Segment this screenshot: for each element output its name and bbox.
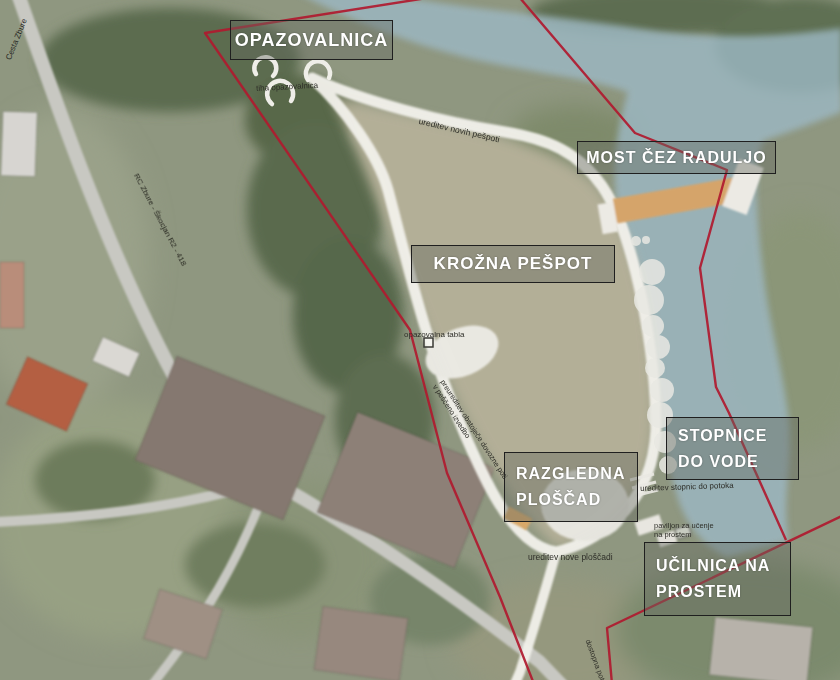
info-board-symbol	[424, 338, 433, 347]
label-stopnice-do-vode: STOPNICE DO VODE	[666, 417, 799, 480]
label-opazovalnica: OPAZOVALNICA	[230, 20, 393, 60]
label-razgledna-ploscad: RAZGLEDNA PLOŠČAD	[504, 452, 638, 522]
annotation-opazovalna-tabla: opazovalna tabla	[404, 330, 465, 339]
aerial-site-plan-map: OPAZOVALNICA MOST ČEZ RADULJO KROŽNA PEŠ…	[0, 0, 840, 680]
label-opazovalnica-text: OPAZOVALNICA	[235, 26, 388, 55]
label-most-cez-raduljo: MOST ČEZ RADULJO	[577, 141, 776, 174]
label-krozna-text: KROŽNA PEŠPOT	[434, 250, 593, 277]
label-ucilnica-na-prostem: UČILNICA NA PROSTEM	[644, 542, 791, 616]
label-razgledna-line1: RAZGLEDNA	[516, 461, 637, 487]
annotation-paviljon-line1: paviljon za učenje	[654, 521, 714, 530]
label-ucilnica-line1: UČILNICA NA	[656, 553, 790, 579]
annotation-paviljon: paviljon za učenje na prostem	[654, 521, 714, 540]
label-stopnice-line2: DO VODE	[678, 449, 798, 475]
label-most-text: MOST ČEZ RADULJO	[586, 145, 766, 171]
label-razgledna-line2: PLOŠČAD	[516, 487, 637, 513]
label-stopnice-line1: STOPNICE	[678, 423, 798, 449]
label-krozna-pespot: KROŽNA PEŠPOT	[411, 245, 615, 283]
label-ucilnica-line2: PROSTEM	[656, 579, 790, 605]
annotation-paviljon-line2: na prostem	[654, 530, 714, 539]
annotation-nova-ploscad: ureditev nove ploščadi	[528, 552, 613, 562]
